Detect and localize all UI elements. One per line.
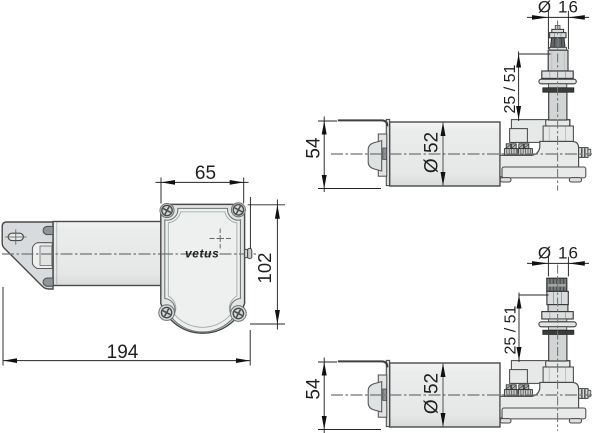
svg-text:54: 54: [304, 137, 325, 159]
svg-text:102: 102: [254, 253, 275, 284]
svg-text:194: 194: [107, 342, 139, 363]
svg-text:Ø 16: Ø 16: [538, 0, 579, 17]
svg-text:Ø 16: Ø 16: [538, 244, 579, 263]
svg-text:25 / 51: 25 / 51: [502, 64, 519, 113]
svg-text:54: 54: [304, 378, 325, 400]
svg-text:Ø 52: Ø 52: [422, 132, 443, 173]
svg-text:Ø 52: Ø 52: [422, 373, 443, 414]
svg-text:65: 65: [195, 163, 216, 184]
svg-text:25 / 51: 25 / 51: [502, 305, 519, 354]
svg-text:vetus: vetus: [185, 247, 219, 261]
